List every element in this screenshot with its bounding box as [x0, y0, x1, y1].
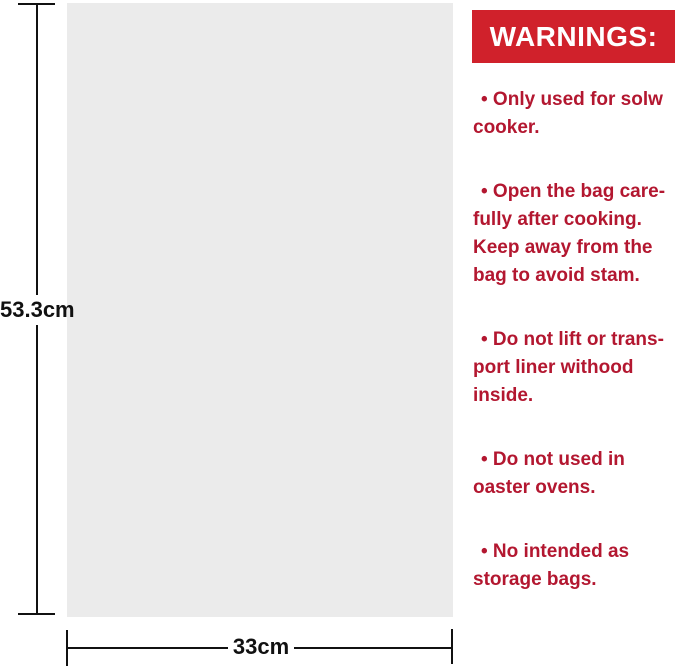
- width-dimension-right-cap: [451, 629, 453, 664]
- warnings-title: WARNINGS:: [490, 21, 658, 53]
- height-label: 53.3cm: [0, 297, 70, 323]
- warning-item: • Open the bag care- fully after cooking…: [473, 178, 679, 290]
- warnings-panel: WARNINGS: • Only used for solw cooker. •…: [472, 10, 679, 630]
- warning-item: • Only used for solw cooker.: [473, 86, 679, 142]
- width-label: 33cm: [228, 634, 294, 660]
- width-dimension-line-left: [68, 647, 228, 649]
- width-dimension-line-right: [294, 647, 452, 649]
- height-dimension-line-upper: [36, 4, 38, 295]
- warning-item: • No intended as storage bags.: [473, 538, 679, 594]
- warning-item: • Do not lift or trans- port liner witho…: [473, 326, 679, 410]
- liner-bag-image: [67, 3, 453, 617]
- height-dimension-bottom-cap: [18, 613, 55, 615]
- product-infographic: 53.3cm 33cm WARNINGS: • Only used for so…: [0, 0, 679, 667]
- warnings-banner: WARNINGS:: [472, 10, 675, 63]
- warning-item: • Do not used in oaster ovens.: [473, 446, 679, 502]
- height-dimension-line-lower: [36, 325, 38, 613]
